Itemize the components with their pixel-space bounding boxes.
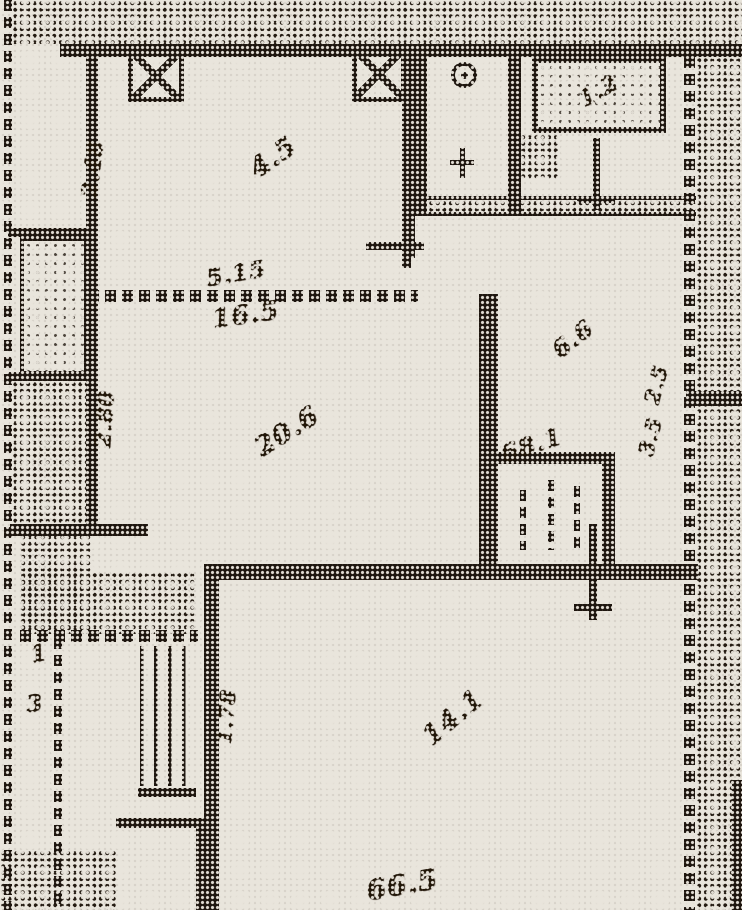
dim-cross-tick-v — [402, 226, 411, 268]
pipe-riser-tick — [574, 604, 612, 611]
vent-shaft-icon — [128, 50, 184, 102]
wall-left-window-bottom — [8, 372, 88, 381]
wall-outer-left — [4, 0, 12, 910]
wall-closet-right — [602, 452, 615, 576]
stair-window-icon — [140, 646, 194, 786]
wall-left-window-top — [8, 228, 88, 237]
wall-inner-right — [684, 57, 695, 910]
vent-shaft-icon — [352, 46, 406, 102]
pipe-riser-tick — [577, 196, 615, 203]
wall-F-left — [54, 638, 62, 910]
wall-block-L-bottom — [20, 630, 198, 642]
wall-fill-left-lower — [12, 381, 88, 529]
dim-label: 5.15 — [204, 255, 268, 292]
wall-block-L-horiz — [20, 572, 196, 634]
toilet-mark-h — [450, 160, 474, 165]
wall-F-mid — [138, 788, 196, 797]
dim-label: 3.5 — [633, 414, 667, 459]
margin-mark: 1 — [27, 639, 49, 669]
wall-toilet-right — [508, 57, 521, 213]
window-icon — [20, 237, 88, 375]
door-block — [196, 826, 218, 910]
room-area-label: 6.6 — [546, 313, 599, 363]
stove-hatch-icon — [520, 134, 560, 180]
room-area-label: 4.5 — [244, 130, 303, 184]
wall-hall-top-band — [415, 196, 696, 216]
wall-outer-right-segment — [732, 780, 742, 910]
wall-toilet-left — [415, 57, 427, 213]
room-area-label: 20.6 — [249, 400, 325, 463]
closet-shelf-mark — [574, 486, 580, 548]
dim-label: 2.48 — [76, 139, 109, 199]
wall-left-lower — [10, 524, 148, 536]
wall-right-stub — [686, 391, 742, 406]
dim-label: 2.5 — [639, 362, 673, 407]
toilet-icon — [451, 62, 477, 88]
wall-fill-top — [12, 0, 742, 44]
wall-roomE-right — [479, 294, 498, 578]
wall-roomG-top — [204, 564, 698, 580]
dim-label: 2.80 — [90, 389, 120, 448]
dim-label: 66.5 — [364, 862, 441, 907]
dim-label: 1.78 — [211, 688, 241, 745]
dim-cross-tick-h — [366, 242, 424, 250]
floor-plan-scan: 2.48 4.5 5.15 16.5 2.80 20.6 6.6 68.1 2.… — [0, 0, 742, 910]
room-area-label: 14.1 — [416, 683, 489, 752]
margin-mark: 3 — [25, 689, 45, 718]
closet-shelf-mark — [548, 480, 554, 550]
closet-shelf-mark — [520, 490, 526, 550]
